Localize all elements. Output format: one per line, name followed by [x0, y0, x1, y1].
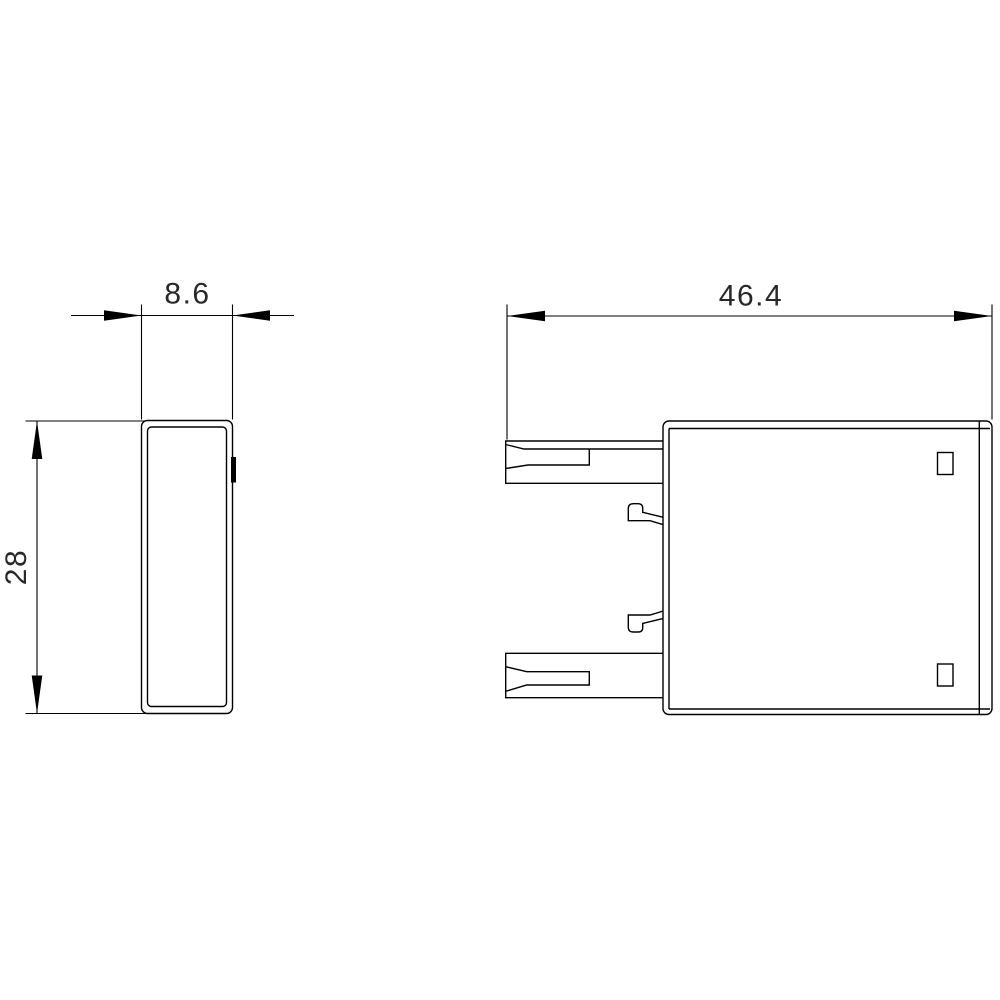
- upper-terminal-outline: [506, 441, 664, 483]
- lower-terminal-slot-line: [506, 667, 590, 692]
- side-view: [142, 421, 236, 714]
- vent-slot-top: [938, 453, 954, 475]
- dim-height-arrow-bottom: [32, 676, 43, 714]
- dim-front-width-arrow-right: [954, 311, 992, 322]
- lower-terminal-outline: [506, 653, 664, 697]
- dim-front-width-arrow-left: [507, 311, 545, 322]
- dim-side-width-arrow-right: [233, 310, 271, 321]
- dim-height-label: 28: [0, 549, 33, 585]
- dim-side-width-arrow-left: [104, 310, 142, 321]
- upper-terminal-blade-line: [506, 445, 664, 450]
- dim-front-width-label: 46.4: [719, 280, 783, 313]
- upper-terminal-slot-line: [506, 449, 590, 469]
- upper-latch-hook: [628, 504, 663, 525]
- front-view-outline: [663, 421, 992, 715]
- lower-terminal: [506, 653, 664, 697]
- side-view-inner-outline: [148, 427, 227, 707]
- side-view-outline: [142, 421, 233, 714]
- dimension-height: 28: [0, 421, 146, 714]
- front-view: [506, 421, 992, 715]
- dim-side-width-label: 8.6: [164, 278, 210, 311]
- dim-height-arrow-top: [32, 421, 43, 459]
- side-view-edge-rib: [232, 458, 236, 483]
- dimension-side-width: 8.6: [71, 278, 294, 420]
- lower-latch-hook: [628, 611, 663, 632]
- technical-drawing-page: 8.6 46.4 28: [0, 0, 1000, 1000]
- dimension-front-width: 46.4: [507, 280, 992, 440]
- technical-drawing-canvas: 8.6 46.4 28: [0, 0, 1000, 1000]
- upper-terminal: [506, 441, 664, 483]
- vent-slot-bottom: [938, 664, 954, 686]
